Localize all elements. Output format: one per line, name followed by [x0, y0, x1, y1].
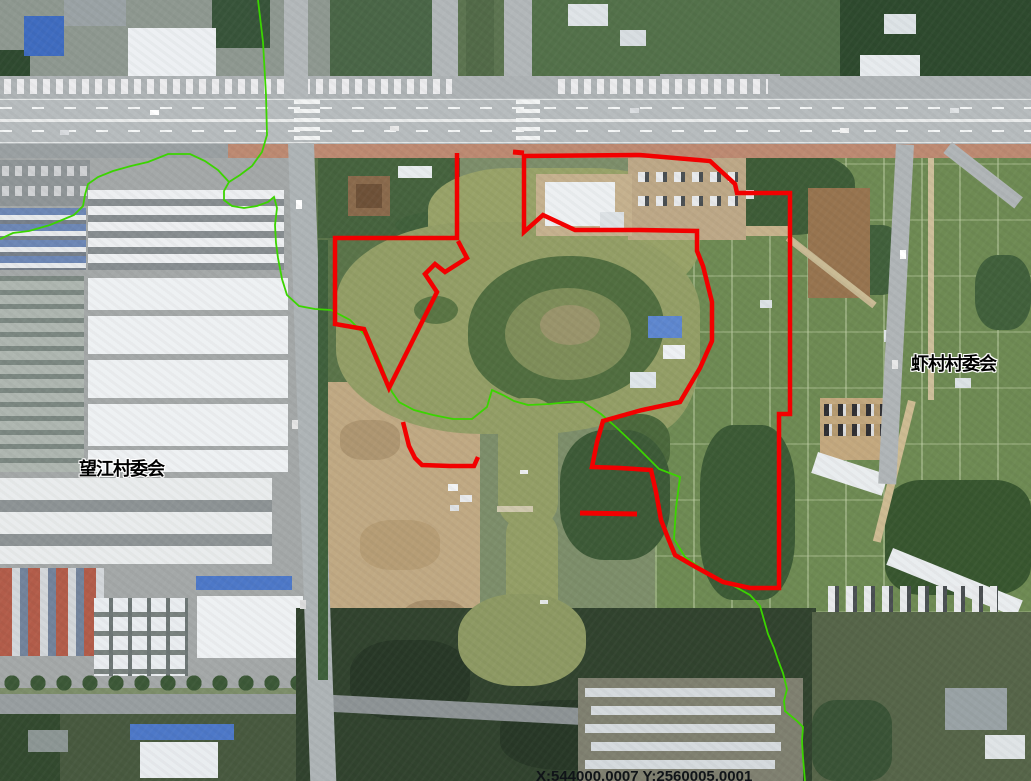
boundary-mid-dash [580, 513, 637, 514]
guide-line-west-branch [0, 154, 229, 239]
boundary-right-parcel [524, 155, 790, 588]
annotation-overlay [0, 0, 1031, 781]
label-xiacun-village-committee: 虾村村委会 [911, 350, 996, 376]
label-wangjiang-village-committee: 望江村委会 [79, 455, 164, 481]
guide-line-main [224, 0, 805, 781]
boundary-lower-segment [403, 422, 478, 466]
boundary-top-tick [513, 152, 524, 153]
boundary-left-parcel [335, 153, 467, 388]
coordinate-readout: X:544000.0007 Y:2560005.0001 [536, 768, 752, 781]
satellite-map-canvas[interactable]: 望江村委会 虾村村委会 X:544000.0007 Y:2560005.0001 [0, 0, 1031, 781]
